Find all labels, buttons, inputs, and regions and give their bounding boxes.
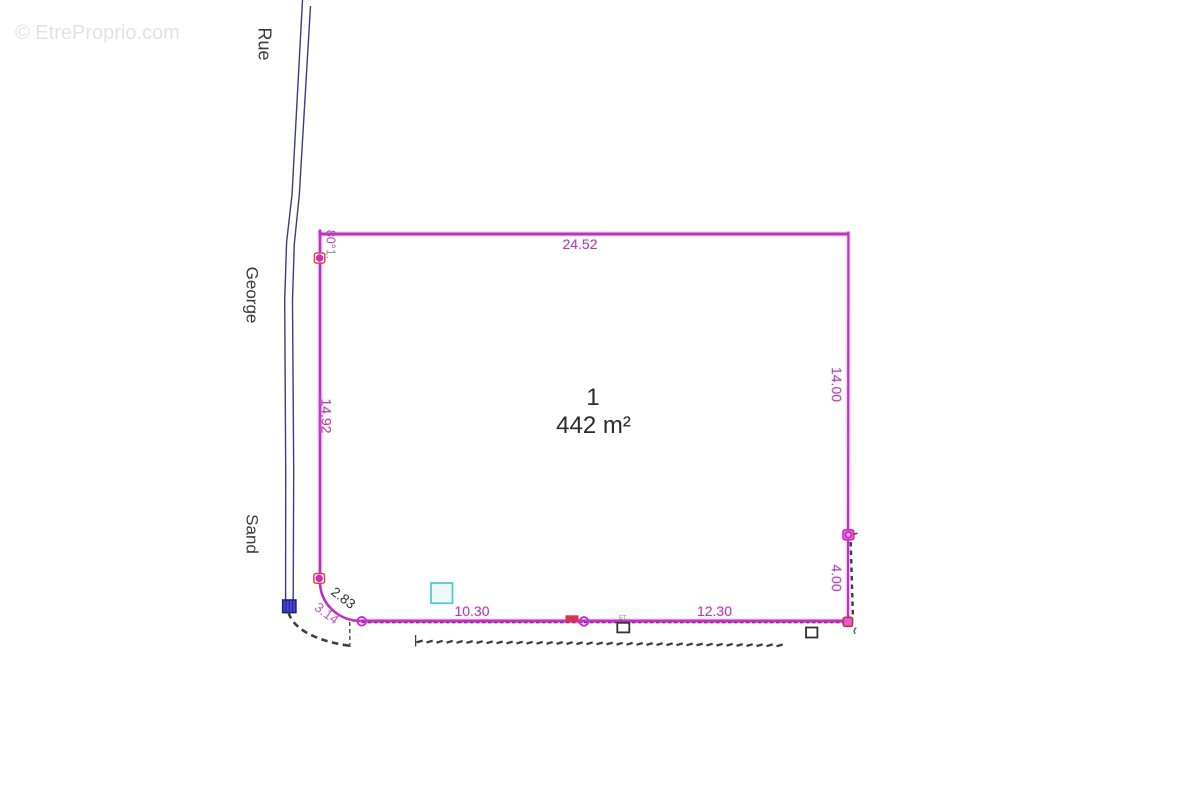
svg-text:14.92: 14.92 — [319, 398, 335, 433]
svg-text:3.14: 3.14 — [312, 600, 342, 628]
svg-text:Rue: Rue — [255, 27, 275, 60]
svg-text:80°1.: 80°1. — [324, 230, 338, 259]
svg-text:14.00: 14.00 — [829, 367, 845, 402]
svg-text:10.30: 10.30 — [454, 603, 489, 619]
svg-text:Sand: Sand — [242, 514, 261, 554]
svg-text:George: George — [243, 267, 262, 324]
svg-text:442 m²: 442 m² — [556, 412, 631, 439]
svg-text:24.52: 24.52 — [562, 236, 597, 252]
svg-text:1: 1 — [586, 384, 599, 411]
svg-text:ET: ET — [619, 615, 627, 621]
svg-text:© EtreProprio.com: © EtreProprio.com — [15, 22, 180, 44]
svg-text:12.30: 12.30 — [697, 603, 732, 619]
svg-text:4.00: 4.00 — [829, 564, 845, 591]
